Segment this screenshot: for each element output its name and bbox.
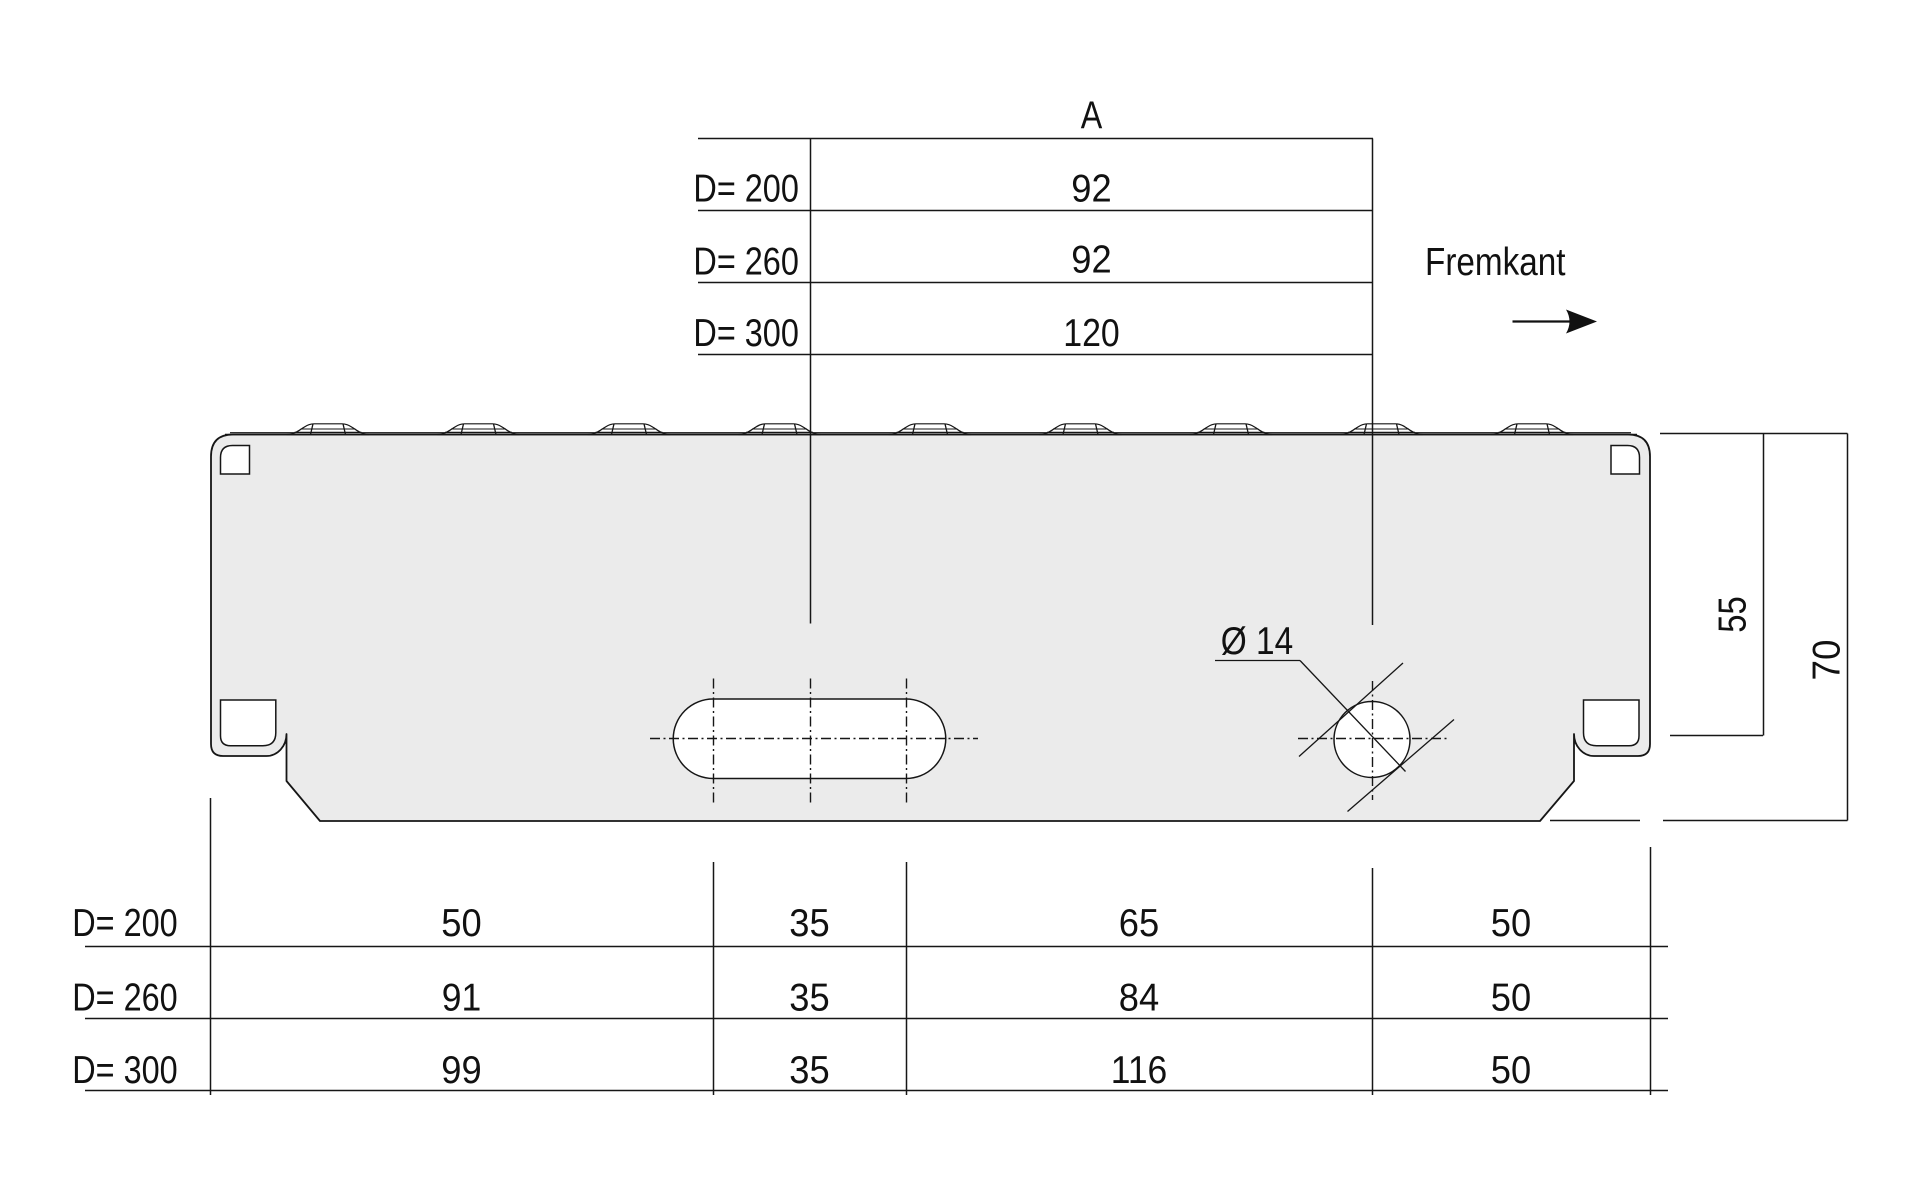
svg-text:70: 70 (1806, 640, 1849, 681)
svg-text:D= 260: D= 260 (72, 977, 178, 1020)
svg-text:A: A (1081, 95, 1103, 138)
svg-text:50: 50 (441, 902, 481, 945)
svg-text:50: 50 (1491, 977, 1531, 1020)
svg-text:D= 300: D= 300 (693, 312, 799, 355)
svg-text:55: 55 (1712, 596, 1755, 633)
svg-text:Fremkant: Fremkant (1425, 241, 1566, 284)
svg-text:65: 65 (1119, 902, 1159, 945)
svg-text:92: 92 (1071, 239, 1111, 282)
svg-text:D= 200: D= 200 (72, 902, 178, 945)
svg-text:120: 120 (1063, 312, 1120, 355)
svg-text:50: 50 (1491, 902, 1531, 945)
svg-text:35: 35 (789, 1049, 829, 1092)
svg-text:35: 35 (789, 977, 829, 1020)
svg-text:91: 91 (442, 977, 482, 1020)
svg-text:50: 50 (1491, 1049, 1531, 1092)
svg-text:D= 260: D= 260 (693, 241, 799, 284)
svg-text:35: 35 (789, 902, 829, 945)
svg-text:99: 99 (441, 1049, 481, 1092)
svg-text:84: 84 (1119, 977, 1159, 1020)
svg-text:Ø 14: Ø 14 (1221, 620, 1293, 663)
svg-text:D= 200: D= 200 (693, 168, 799, 211)
svg-text:D= 300: D= 300 (72, 1049, 178, 1092)
svg-text:92: 92 (1071, 168, 1111, 211)
svg-text:116: 116 (1111, 1049, 1168, 1092)
